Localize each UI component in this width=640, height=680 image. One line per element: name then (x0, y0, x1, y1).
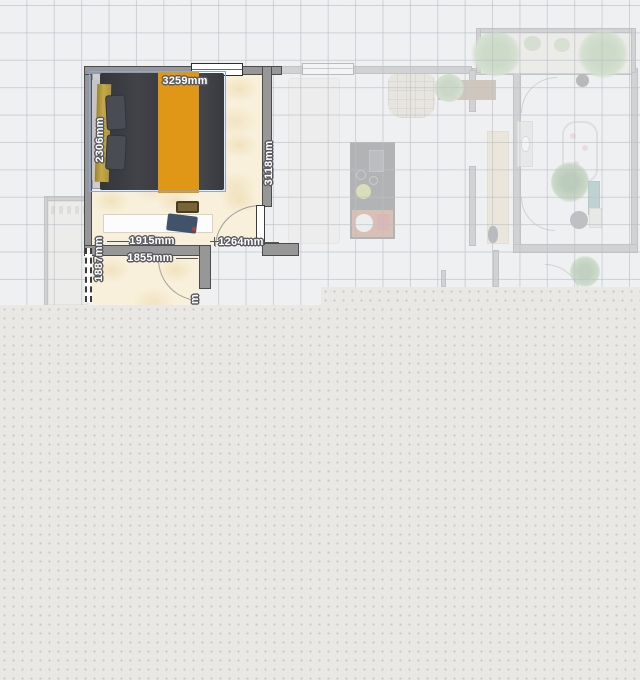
workspace-background-step (321, 287, 640, 306)
selection-box (89, 71, 226, 192)
bedroom-window-glass-line (192, 69, 242, 70)
active-bedroom[interactable]: 3259mm 2306mm 3118mm 1915mm 1264mm 1855m… (0, 0, 640, 305)
dim-label-opening-side: 1887mm (93, 236, 105, 282)
dim-label-bed-width: 3259mm (150, 75, 220, 87)
mouse-dot (192, 227, 196, 231)
wall-opening-dashed[interactable] (85, 248, 92, 302)
dim-line-1855-right (176, 258, 198, 259)
plan-canvas[interactable]: 3259mm 2306mm 3118mm 1915mm 1264mm 1855m… (0, 0, 640, 305)
dim-label-bed-depth: 2306mm (94, 117, 106, 163)
dim-label-partial: m (189, 292, 201, 305)
desk-chair[interactable] (176, 201, 199, 213)
dim-line-1264-right (264, 242, 279, 243)
bedroom-wall-step[interactable] (199, 245, 211, 289)
workspace-background (0, 305, 640, 680)
dim-line-1915-left (107, 241, 129, 242)
dim-label-wall-inner: 1915mm (128, 235, 176, 247)
dim-label-door-section: 1264mm (216, 236, 266, 248)
dim-label-room-side: 3118mm (263, 140, 275, 186)
dim-label-wall-lower: 1855mm (126, 252, 174, 264)
bedroom-wall-corner[interactable] (262, 243, 299, 256)
